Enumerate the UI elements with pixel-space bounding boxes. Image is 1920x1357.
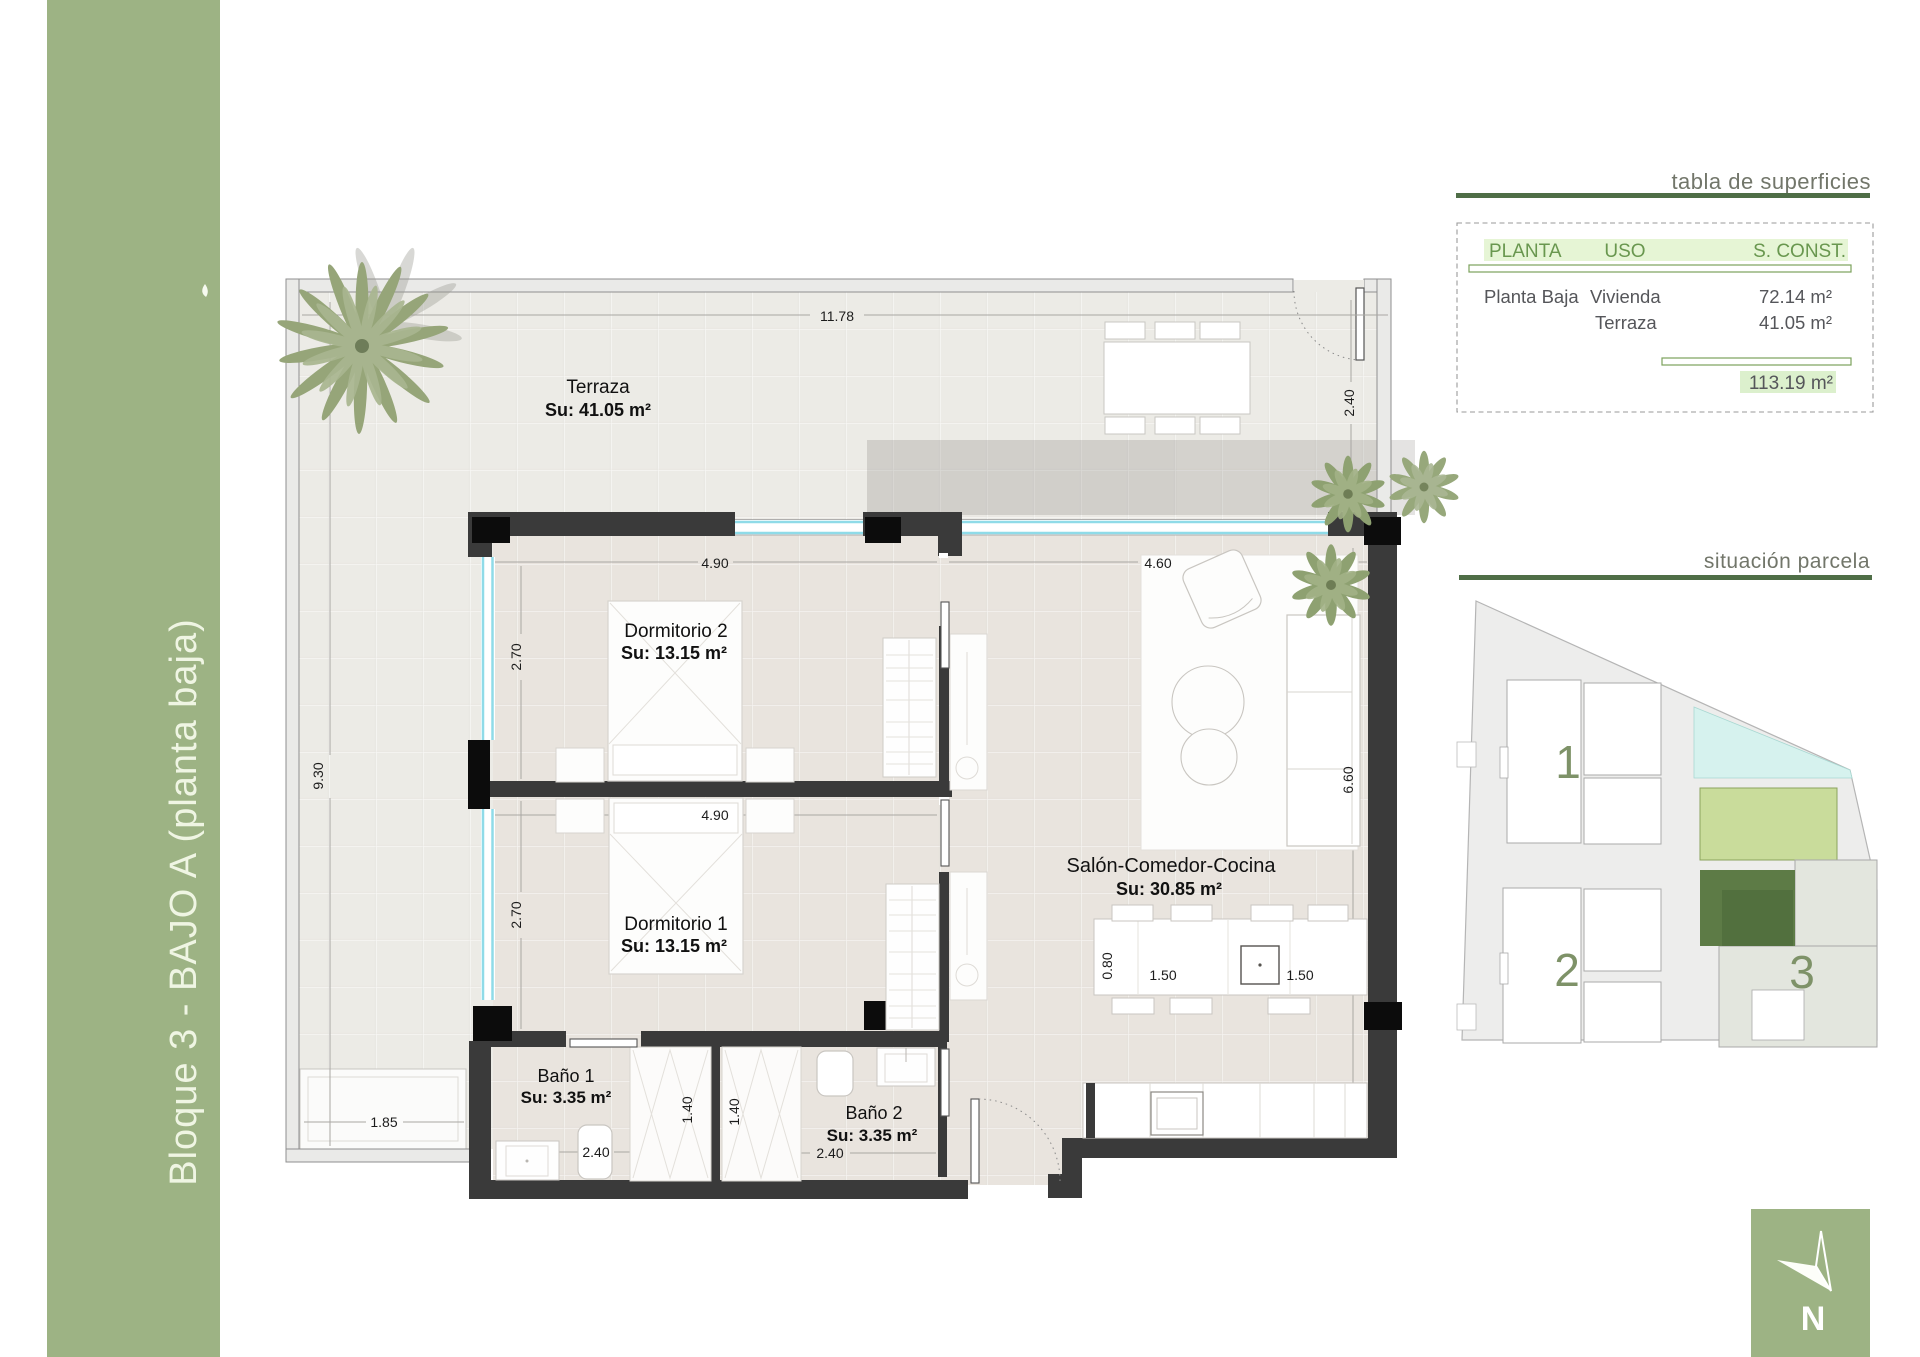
- svg-text:Su: 3.35 m²: Su: 3.35 m²: [521, 1088, 612, 1107]
- svg-text:2: 2: [1554, 944, 1580, 996]
- svg-text:USO: USO: [1604, 241, 1645, 262]
- svg-text:2.40: 2.40: [1341, 389, 1357, 416]
- svg-text:Su: 13.15 m²: Su: 13.15 m²: [621, 643, 727, 663]
- svg-text:0.80: 0.80: [1099, 952, 1115, 979]
- svg-text:PLANTA: PLANTA: [1489, 241, 1562, 262]
- svg-text:S. CONST.: S. CONST.: [1753, 241, 1846, 262]
- svg-text:4.60: 4.60: [1144, 555, 1171, 571]
- svg-text:Terraza: Terraza: [1595, 312, 1657, 333]
- svg-text:Dormitorio 2: Dormitorio 2: [624, 621, 727, 642]
- svg-text:Su: 13.15 m²: Su: 13.15 m²: [621, 936, 727, 956]
- svg-text:1.85: 1.85: [370, 1114, 397, 1130]
- svg-text:Bloque 3 - BAJO A (planta baja: Bloque 3 - BAJO A (planta baja): [163, 618, 205, 1186]
- svg-text:Dormitorio 1: Dormitorio 1: [624, 914, 727, 935]
- svg-text:Baño 2: Baño 2: [845, 1103, 902, 1123]
- svg-text:11.78: 11.78: [820, 308, 854, 324]
- svg-text:3: 3: [1789, 946, 1815, 998]
- svg-text:Terraza: Terraza: [566, 377, 630, 398]
- svg-text:2.70: 2.70: [508, 643, 524, 670]
- svg-text:Salón-Comedor-Cocina: Salón-Comedor-Cocina: [1067, 855, 1277, 877]
- svg-text:Planta Baja: Planta Baja: [1484, 286, 1579, 307]
- svg-text:1: 1: [1555, 736, 1581, 788]
- svg-text:2.70: 2.70: [508, 901, 524, 928]
- svg-text:Su: 3.35 m²: Su: 3.35 m²: [827, 1126, 918, 1145]
- svg-text:N: N: [1801, 1300, 1826, 1338]
- svg-text:4.90: 4.90: [701, 555, 728, 571]
- svg-text:2.40: 2.40: [582, 1144, 609, 1160]
- svg-text:1.50: 1.50: [1286, 967, 1313, 983]
- svg-text:Su: 41.05 m²: Su: 41.05 m²: [545, 400, 651, 420]
- svg-text:Su: 30.85 m²: Su: 30.85 m²: [1116, 879, 1222, 899]
- svg-text:9.30: 9.30: [310, 762, 326, 789]
- svg-text:72.14 m²: 72.14 m²: [1759, 286, 1832, 307]
- svg-text:Vivienda: Vivienda: [1590, 286, 1661, 307]
- svg-text:1.40: 1.40: [726, 1098, 742, 1125]
- svg-text:1.40: 1.40: [679, 1096, 695, 1123]
- svg-text:113.19 m²: 113.19 m²: [1749, 373, 1833, 394]
- svg-text:4.90: 4.90: [701, 807, 728, 823]
- svg-text:1.50: 1.50: [1149, 967, 1176, 983]
- svg-text:tabla de superficies: tabla de superficies: [1671, 169, 1871, 194]
- svg-text:6.60: 6.60: [1340, 766, 1356, 793]
- svg-text:Baño 1: Baño 1: [537, 1066, 594, 1086]
- svg-text:2.40: 2.40: [816, 1145, 843, 1161]
- svg-text:situación parcela: situación parcela: [1704, 550, 1870, 573]
- svg-text:41.05 m²: 41.05 m²: [1759, 312, 1832, 333]
